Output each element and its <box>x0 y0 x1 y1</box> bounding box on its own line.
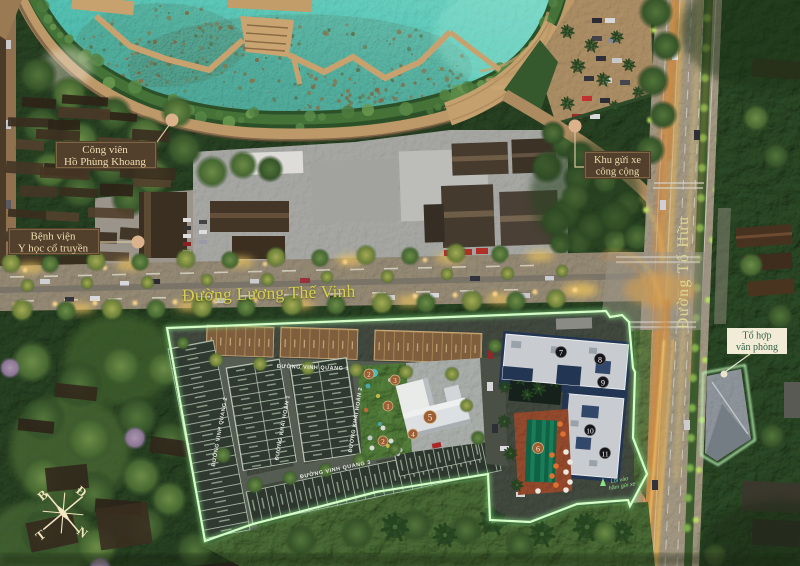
svg-text:Tổ hợp: Tổ hợp <box>743 331 772 342</box>
svg-text:Hồ Phùng Khoang: Hồ Phùng Khoang <box>64 156 146 168</box>
svg-text:2: 2 <box>381 438 385 446</box>
svg-text:5: 5 <box>428 413 433 423</box>
svg-text:1: 1 <box>386 403 390 411</box>
svg-text:3: 3 <box>393 377 397 385</box>
svg-text:10: 10 <box>586 427 594 436</box>
svg-text:Công viên: Công viên <box>82 144 128 156</box>
svg-text:Khu gửi xe: Khu gửi xe <box>594 155 641 166</box>
svg-text:7: 7 <box>559 349 563 358</box>
svg-text:6: 6 <box>536 445 540 454</box>
svg-text:Y học cổ truyền: Y học cổ truyền <box>18 243 89 255</box>
svg-text:2: 2 <box>367 371 371 379</box>
svg-text:8: 8 <box>598 356 602 365</box>
svg-text:Đường Tố Hữu: Đường Tố Hữu <box>675 216 692 329</box>
svg-text:9: 9 <box>601 379 605 388</box>
svg-text:công cộng: công cộng <box>596 167 640 178</box>
svg-text:Bệnh viện: Bệnh viện <box>31 231 76 243</box>
svg-text:4: 4 <box>411 431 415 439</box>
svg-text:11: 11 <box>601 450 608 459</box>
svg-text:văn phòng: văn phòng <box>736 342 778 353</box>
